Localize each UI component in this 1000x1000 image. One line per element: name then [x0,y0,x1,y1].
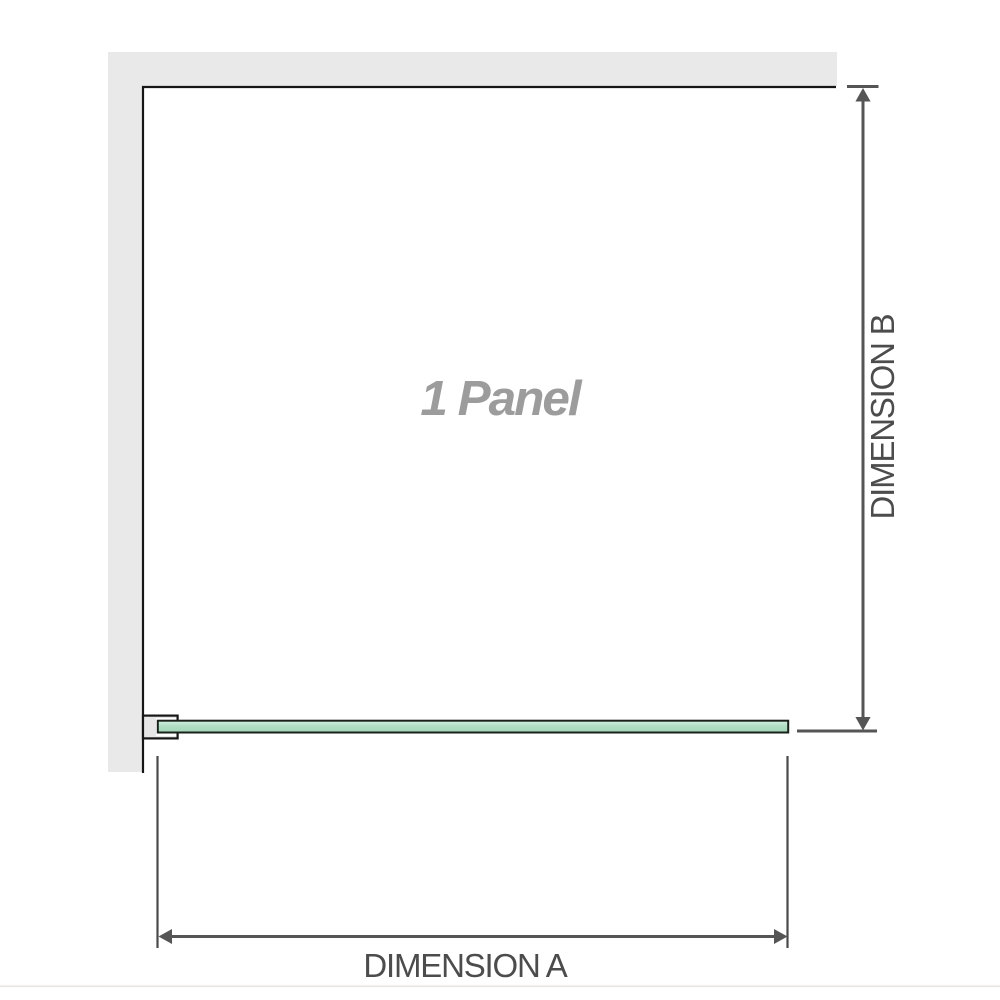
svg-text:1 Panel: 1 Panel [420,371,583,426]
svg-text:DIMENSION A: DIMENSION A [363,947,567,984]
svg-text:DIMENSION B: DIMENSION B [864,314,901,519]
